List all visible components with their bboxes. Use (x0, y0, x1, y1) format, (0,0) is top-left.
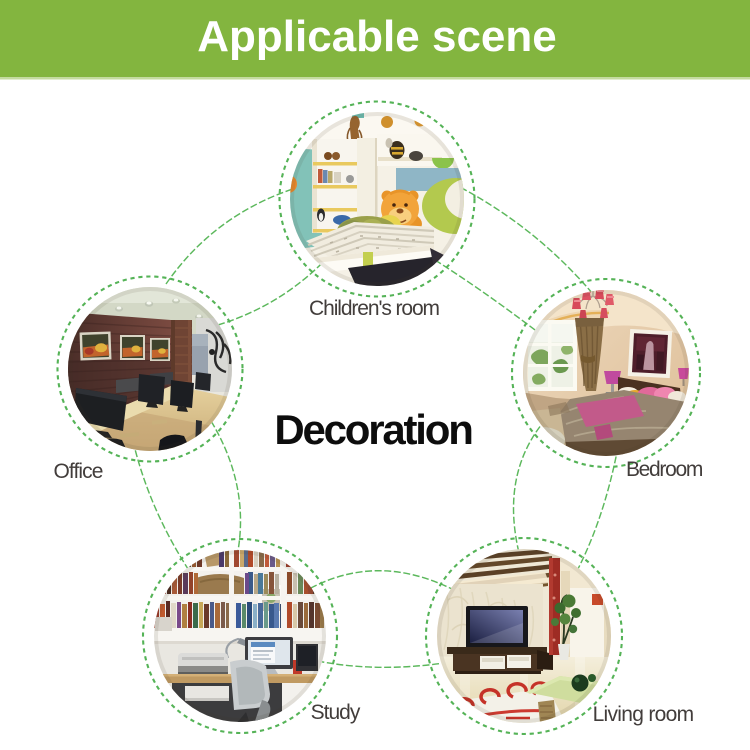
svg-text:Office: Office (53, 460, 102, 483)
svg-text:Decoration: Decoration (274, 406, 472, 453)
svg-text:Children's room: Children's room (309, 297, 440, 320)
svg-text:Bedroom: Bedroom (626, 458, 703, 481)
svg-text:Study: Study (311, 701, 361, 724)
svg-text:Applicable scene: Applicable scene (197, 12, 556, 61)
svg-text:Living room: Living room (593, 703, 694, 726)
